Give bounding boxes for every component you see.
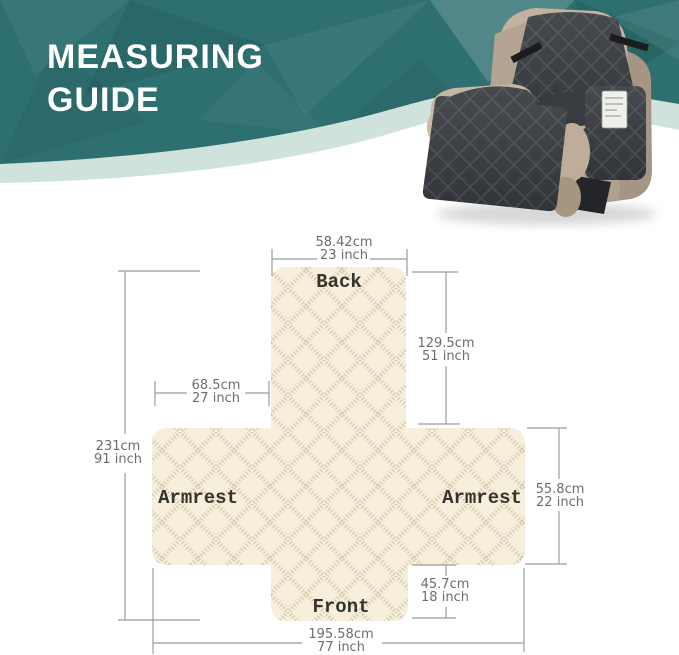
dimension-back-width: 58.42cm 23 inch <box>315 236 372 262</box>
dimension-total-width: 195.58cm 77 inch <box>308 628 373 654</box>
dimension-back-height: 129.5cm 51 inch <box>417 337 474 363</box>
dimension-seat-depth: 68.5cm 27 inch <box>192 379 241 405</box>
measuring-guide-page: MEASURING GUIDE <box>0 0 679 655</box>
front-drop-inch: 18 inch <box>421 591 470 604</box>
back-width-inch: 23 inch <box>315 249 372 262</box>
seat-depth-inch: 27 inch <box>192 392 241 405</box>
label-front-panel: Front <box>312 596 369 618</box>
dimension-front-drop: 45.7cm 18 inch <box>421 578 470 604</box>
dimension-armrest-height: 55.8cm 22 inch <box>536 483 585 509</box>
label-armrest-right-panel: Armrest <box>442 487 522 509</box>
total-length-inch: 91 inch <box>94 453 142 466</box>
dimension-total-length: 231cm 91 inch <box>94 440 142 466</box>
label-back-panel: Back <box>316 271 362 293</box>
cover-layout-diagram <box>0 0 679 655</box>
total-width-inch: 77 inch <box>308 641 373 654</box>
armrest-height-inch: 22 inch <box>536 496 585 509</box>
label-armrest-left-panel: Armrest <box>158 487 238 509</box>
back-height-inch: 51 inch <box>417 350 474 363</box>
cover-cross-shape <box>152 267 525 621</box>
